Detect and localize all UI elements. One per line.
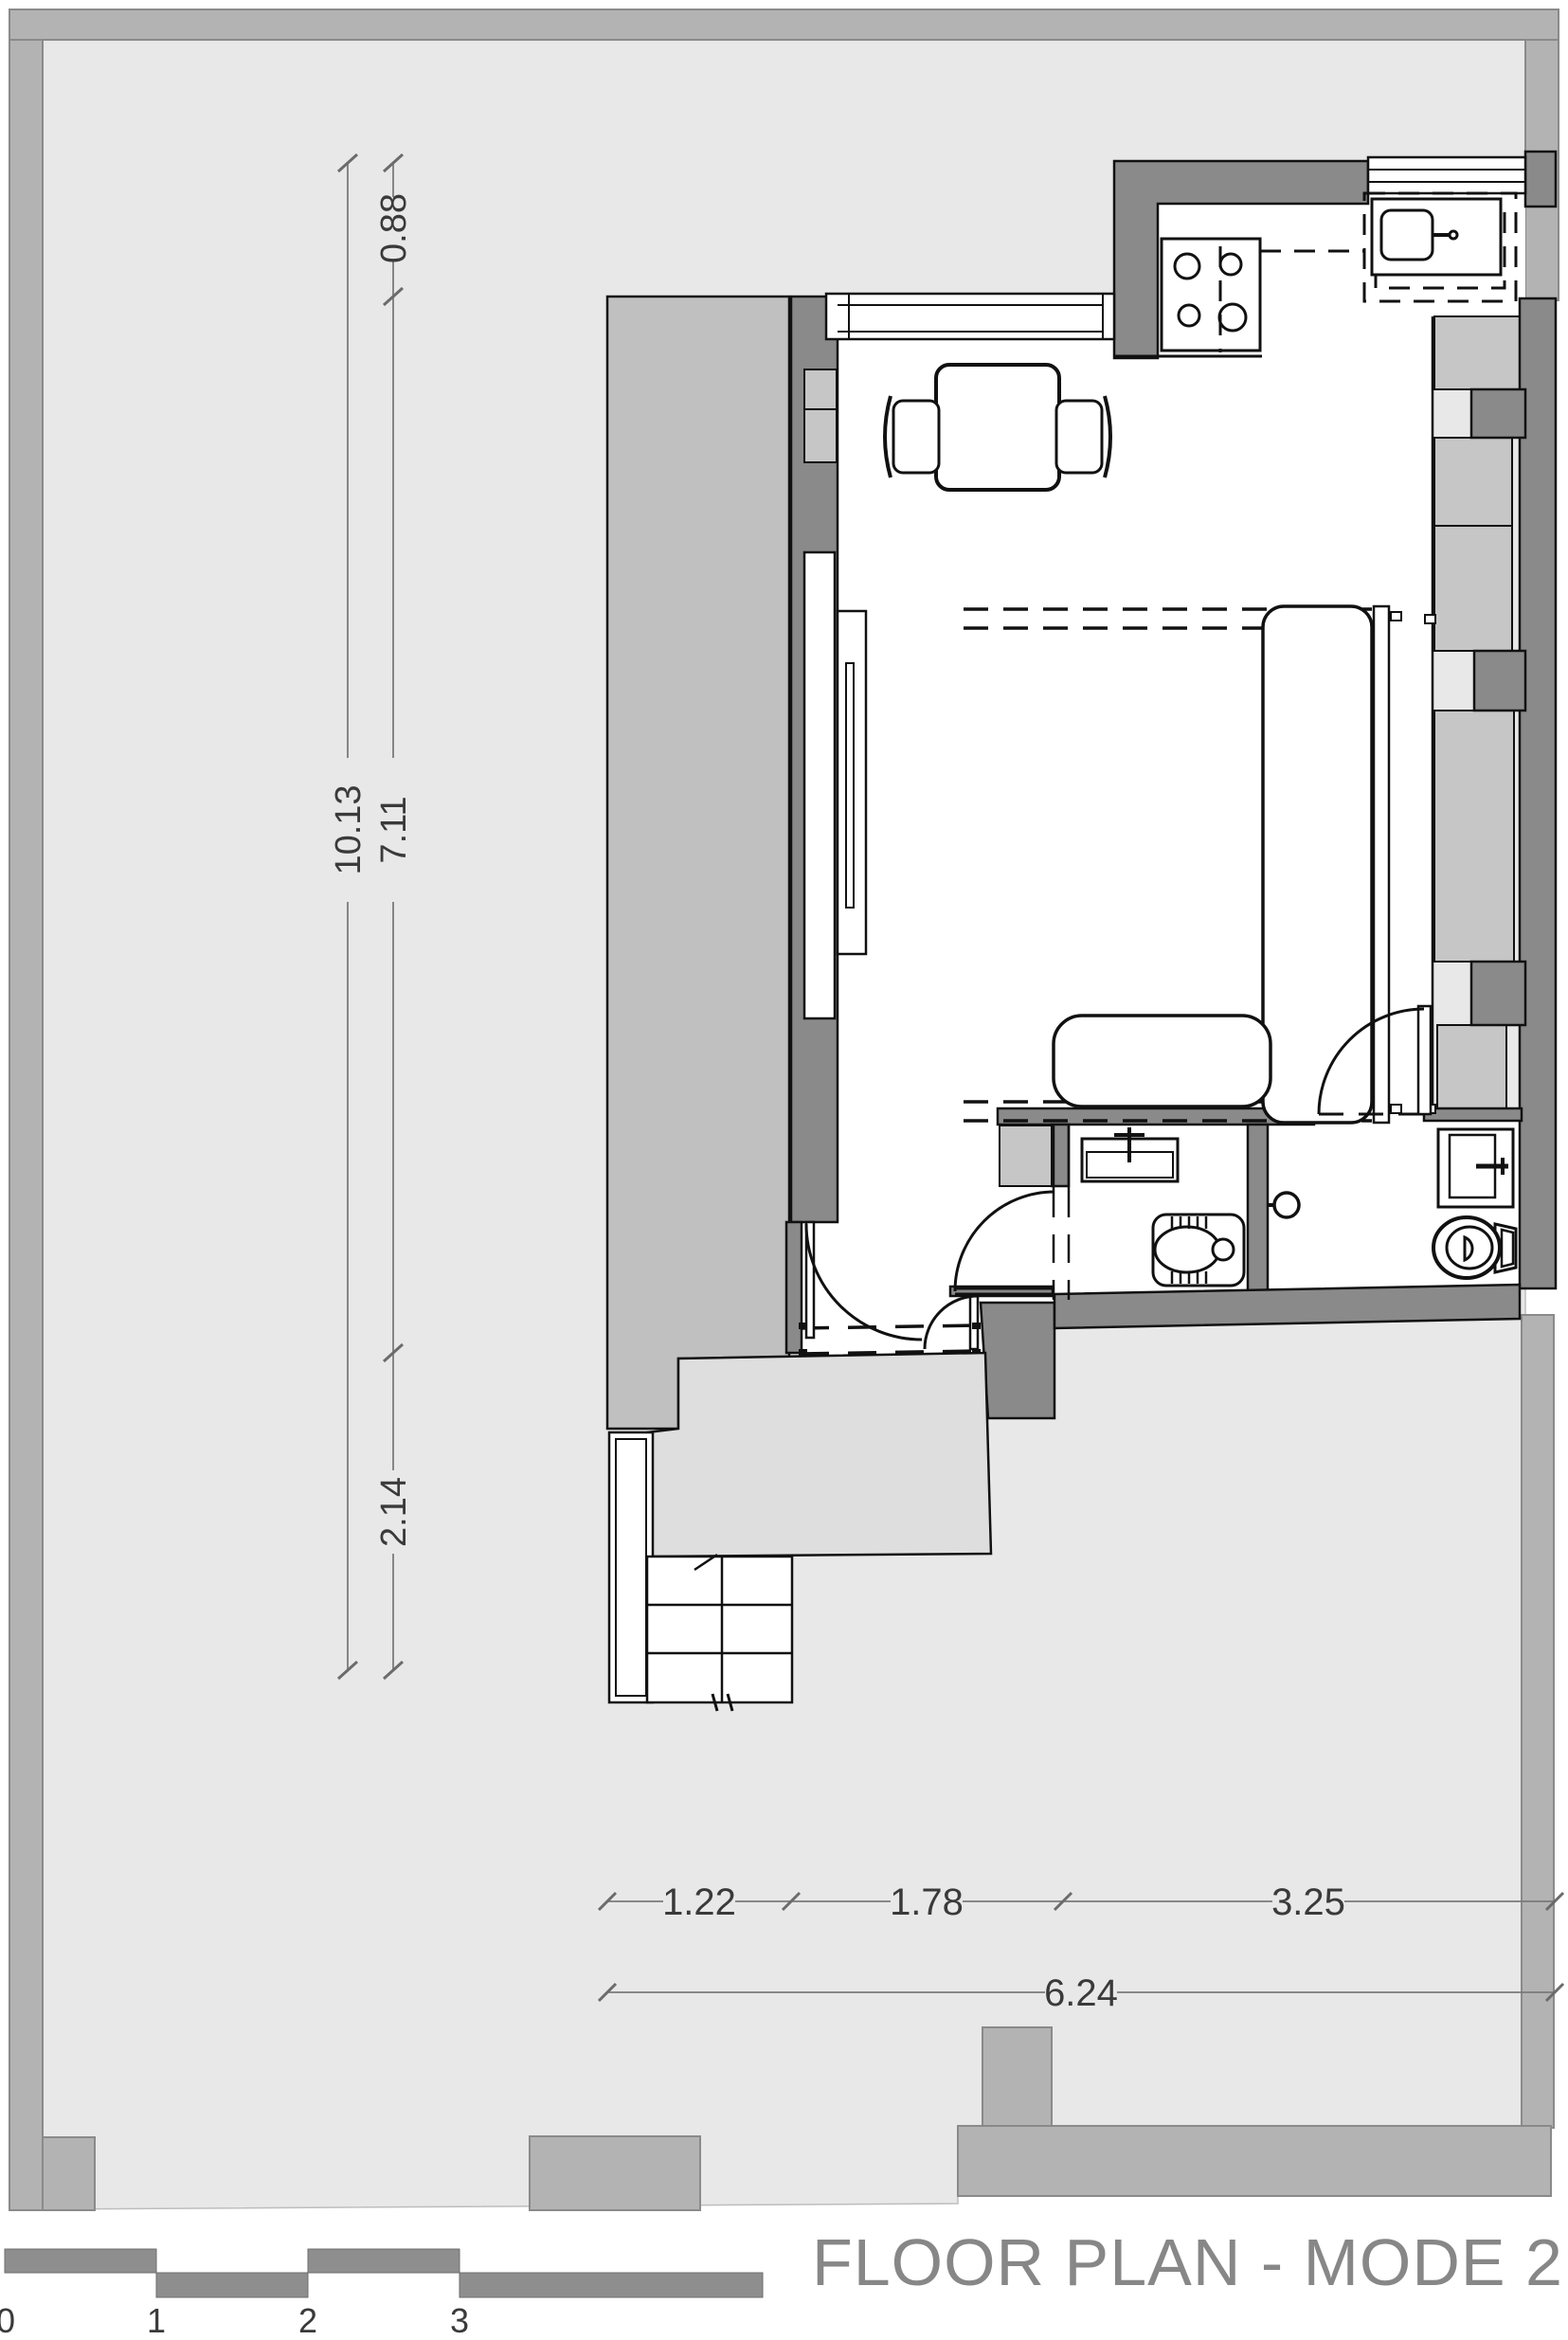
wardrobe [804,552,835,1018]
right-wall-step-1 [1471,389,1525,438]
bath2-sink [1438,1129,1513,1207]
scale-bar-labels: 0 1 2 3 [0,2301,469,2340]
neighbor-building-mass [607,297,789,1429]
right-wall-step-3 [1471,962,1525,1025]
dim-label-middle: 7.11 [374,796,414,863]
partition-wall-right [1424,1108,1522,1121]
dining-chair-left [893,401,939,473]
wall-cabinet-1 [804,369,837,409]
entry-wall-stub [981,1303,1054,1418]
frame-left-foot [43,2137,95,2210]
frame-bottom-tab [982,2027,1052,2126]
bath-dividing-wall [1248,1125,1268,1300]
entry-platform [647,1353,991,1557]
frame-left-band [9,40,43,2210]
frame-bottom-left-tab [530,2136,700,2210]
dim-label-bottom: 2.14 [374,1477,414,1547]
dim-label-top: 0.88 [374,193,414,263]
sofa [1263,606,1372,1123]
dining-table [936,365,1059,490]
scale-label-2: 2 [298,2301,317,2340]
scale-label-3: 3 [450,2301,469,2340]
dim-label-seg2: 1.78 [890,1881,964,1923]
duct-shaft [1000,1125,1052,1186]
kitchen-stove [1162,239,1260,351]
stairs [647,1555,792,1711]
bed-frame-strip [1374,606,1389,1123]
right-wall [1520,298,1556,1288]
window-top-left [826,294,1114,339]
scale-label-0: 0 [0,2301,15,2340]
squat-toilet [1153,1215,1244,1286]
floor-plan-sheet: 10.13 0.88 7.11 2.14 1.22 1.78 3.25 6.24 [0,0,1568,2340]
dim-label-total-height: 10.13 [329,784,369,874]
coffee-table [1054,1016,1271,1107]
scale-bar: 0 1 2 3 [0,2249,763,2340]
frame-top-band [9,9,1559,40]
right-wall-step-2 [1474,651,1525,711]
scale-label-1: 1 [147,2301,166,2340]
dim-label-seg1: 1.22 [662,1881,736,1923]
tv-screen [846,663,854,908]
plan-title: FLOOR PLAN - MODE 2 [812,2225,1563,2299]
frame-right-lower-band [1522,1315,1554,2128]
left-wall-lower [786,1222,802,1353]
dim-label-seg3: 3.25 [1271,1881,1345,1923]
toilet [1433,1217,1516,1278]
dining-chair-right [1056,401,1102,473]
right-wall-top [1525,152,1556,207]
scale-bar-segments [5,2249,763,2297]
window-top-right [1368,157,1525,193]
kitchen-sink [1372,199,1501,275]
frame-bottom-right-band [958,2126,1551,2196]
dim-label-total-width: 6.24 [1044,1972,1118,2014]
wall-cabinet-2 [804,409,837,462]
